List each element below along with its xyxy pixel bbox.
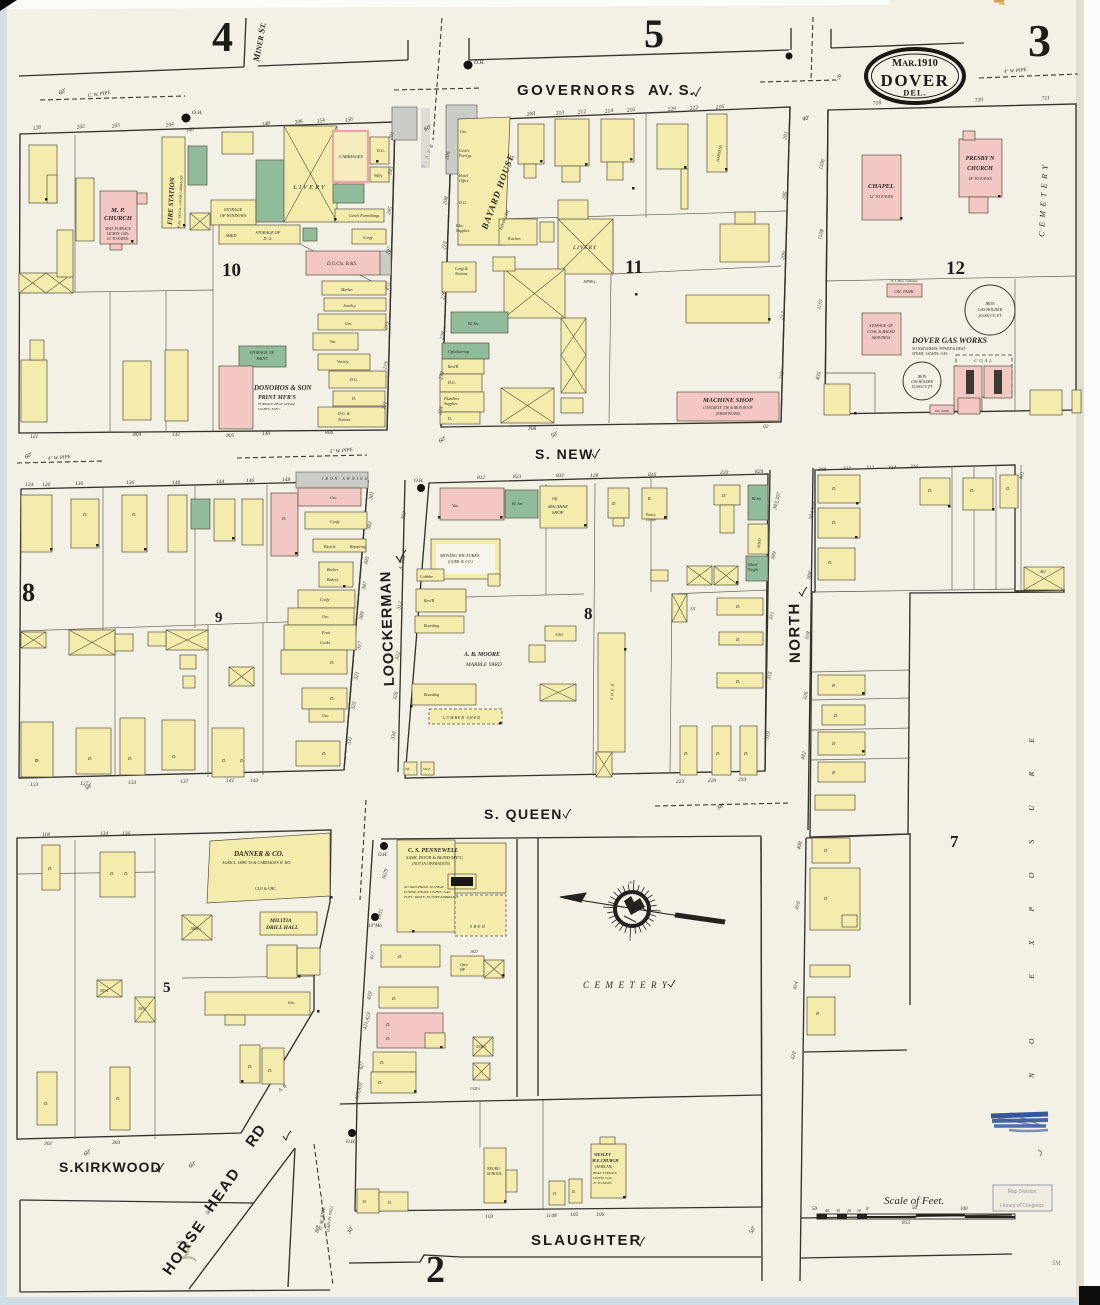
svg-text:COAL: COAL [974, 358, 994, 363]
svg-text:Notions: Notions [454, 271, 468, 276]
svg-text:5: 5 [163, 980, 171, 996]
svg-text:SHAVINGS: SHAVINGS [872, 335, 890, 340]
svg-text:D.G.: D.G. [349, 377, 358, 382]
svg-text:3032: 3032 [138, 1006, 146, 1011]
svg-text:D.: D. [115, 1096, 120, 1101]
svg-text:124: 124 [25, 481, 34, 488]
svg-text:S.KIRKWOOD: S.KIRKWOOD [59, 1159, 162, 1175]
svg-text:(FROM PLANS): (FROM PLANS) [716, 412, 741, 416]
svg-text:100: 100 [960, 1207, 968, 1212]
svg-text:DANNER & CO.: DANNER & CO. [233, 850, 284, 858]
svg-text:1806½: 1806½ [190, 926, 201, 931]
svg-text:Furn'gs: Furn'gs [458, 153, 472, 158]
svg-text:137: 137 [180, 779, 189, 785]
svg-text:Notions: Notions [337, 417, 351, 422]
svg-text:118: 118 [42, 832, 50, 838]
svg-text:Corner: Corner [646, 518, 657, 522]
svg-text:1899¼: 1899¼ [583, 279, 596, 284]
svg-text:Upholstering: Upholstering [448, 349, 469, 354]
svg-text:B.: B. [648, 496, 651, 501]
svg-text:D.: D. [221, 758, 226, 763]
svg-text:Confy: Confy [363, 235, 373, 240]
svg-text:C. S. PENNEWELL: C. S. PENNEWELL [408, 848, 459, 854]
svg-text:140: 140 [172, 479, 181, 486]
svg-text:50: 50 [812, 1207, 818, 1212]
svg-text:216: 216 [626, 107, 635, 114]
svg-text:D.: D. [397, 954, 402, 959]
svg-text:Variety: Variety [337, 359, 349, 364]
svg-text:CEMETERY: CEMETERY [583, 980, 672, 990]
svg-text:Open: Open [460, 963, 468, 967]
svg-text:D.: D. [247, 1064, 252, 1069]
svg-text:IRON AWNING: IRON AWNING [321, 476, 369, 481]
svg-text:1827: 1827 [470, 949, 479, 954]
svg-text:14"Mn: 14"Mn [368, 924, 382, 929]
svg-text:130: 130 [75, 481, 84, 487]
svg-text:SCHOOL: SCHOOL [487, 1172, 502, 1176]
svg-text:823: 823 [513, 474, 522, 480]
svg-text:HEAT: FURNACE: HEAT: FURNACE [592, 1171, 617, 1175]
svg-text:Library of Congress: Library of Congress [1000, 1203, 1044, 1209]
svg-text:312: 312 [865, 465, 875, 471]
svg-text:303: 303 [111, 1140, 121, 1146]
svg-text:D.: D. [267, 1068, 272, 1073]
svg-text:204: 204 [165, 121, 175, 129]
svg-text:D.: D. [969, 488, 974, 493]
svg-text:D.: D. [362, 1199, 367, 1204]
svg-text:IRON: IRON [984, 301, 995, 306]
svg-text:Wheel: Wheel [748, 563, 758, 567]
svg-text:CLO & VHC.: CLO & VHC. [255, 886, 277, 891]
svg-text:LIGHTS: ELEC-: LIGHTS: ELEC- [257, 407, 281, 411]
svg-text:154: 154 [316, 117, 326, 125]
svg-text:SHOP: SHOP [552, 510, 564, 515]
svg-text:Vac.: Vac. [452, 503, 460, 508]
svg-text:3034: 3034 [100, 988, 108, 993]
svg-text:D.: D. [735, 637, 740, 642]
svg-text:PAINT: PAINT [255, 356, 268, 361]
svg-text:Gent's Furnishings: Gent's Furnishings [349, 213, 380, 218]
svg-text:D.: D. [831, 486, 836, 491]
svg-text:NEGRO: NEGRO [486, 1167, 500, 1171]
svg-text:D.: D. [321, 751, 326, 756]
svg-text:DEL.: DEL. [903, 88, 927, 98]
svg-text:OIL TANK: OIL TANK [935, 409, 950, 413]
svg-text:40: 40 [825, 1208, 829, 1213]
svg-text:5M: 5M [1052, 1261, 1060, 1267]
svg-text:LIGHTS: GAS:: LIGHTS: GAS: [106, 232, 129, 236]
svg-text:Market: Market [340, 287, 353, 292]
svg-text:103: 103 [485, 1214, 494, 1220]
svg-text:233: 233 [738, 777, 747, 783]
svg-text:MARBLE YARD: MARBLE YARD [465, 662, 502, 668]
svg-text:SEAT. FURNACE: SEAT. FURNACE [105, 227, 132, 231]
svg-text:D.G. &: D.G. & [337, 411, 351, 416]
svg-text:O.H.: O.H. [346, 1140, 356, 1145]
svg-text:30: 30 [836, 1208, 840, 1213]
svg-text:NO WATCHMAN- POWER & HEAT-: NO WATCHMAN- POWER & HEAT- [911, 347, 967, 351]
svg-text:148: 148 [282, 476, 291, 483]
svg-text:Office: Office [459, 178, 469, 183]
svg-text:Rest'R: Rest'R [447, 364, 459, 369]
svg-text:141: 141 [172, 431, 181, 438]
svg-text:MACHINE SHOP: MACHINE SHOP [702, 397, 754, 404]
svg-text:FURNACE HEAT- STEAM: FURNACE HEAT- STEAM [257, 402, 295, 406]
svg-text:IRON: IRON [917, 375, 927, 379]
svg-text:829: 829 [755, 469, 764, 475]
svg-text:220: 220 [720, 470, 729, 476]
svg-text:D.: D. [552, 1191, 557, 1196]
svg-text:D.: D. [447, 416, 452, 421]
svg-text:OF WINDOWS: OF WINDOWS [220, 213, 247, 218]
svg-text:11: 11 [625, 257, 643, 278]
svg-text:LIVERY: LIVERY [572, 245, 597, 251]
svg-text:Wright: Wright [748, 568, 759, 572]
svg-text:D.: D. [329, 660, 334, 665]
svg-text:D.: D. [377, 1080, 382, 1085]
svg-text:Bl.Sm.: Bl.Sm. [752, 497, 762, 501]
svg-text:NORTH: NORTH [786, 602, 804, 663]
svg-text:Shed: Shed [423, 767, 430, 771]
svg-text:D.: D. [827, 560, 832, 565]
svg-text:141: 141 [226, 777, 235, 784]
svg-text:Bakery: Bakery [327, 577, 339, 582]
svg-text:OIL TANK: OIL TANK [894, 289, 914, 294]
svg-text:SHED: SHED [609, 682, 615, 700]
svg-text:4305½: 4305½ [476, 1045, 486, 1049]
svg-text:D.: D. [87, 756, 92, 761]
svg-text:Kitchen: Kitchen [507, 236, 520, 241]
svg-text:STORAGE OF: STORAGE OF [869, 323, 893, 328]
svg-text:GOVERNORS: GOVERNORS [517, 82, 637, 99]
svg-text:D.: D. [239, 758, 244, 763]
svg-text:D.: D. [387, 1200, 392, 1205]
svg-text:D.: D. [47, 866, 52, 871]
svg-text:D.: D. [351, 396, 356, 401]
svg-text:S. QUEEN: S. QUEEN [484, 806, 563, 822]
svg-text:311: 311 [690, 606, 696, 611]
svg-text:216: 216 [715, 104, 724, 111]
svg-text:806: 806 [325, 430, 334, 436]
svg-text:CHURCH: CHURCH [104, 215, 133, 222]
svg-text:212: 212 [577, 109, 586, 116]
svg-text:Off: Off [552, 496, 558, 501]
svg-text:Bicycle: Bicycle [324, 544, 336, 549]
svg-text:STORAGE OF: STORAGE OF [250, 350, 275, 355]
svg-text:815: 815 [902, 1220, 911, 1226]
svg-text:N: N [628, 880, 632, 885]
svg-text:CHAPEL: CHAPEL [868, 183, 894, 190]
svg-text:MAR.1910: MAR.1910 [892, 58, 938, 69]
svg-text:DONOHOS & SON: DONOHOS & SON [253, 384, 313, 392]
svg-text:Gro.: Gro. [322, 614, 329, 619]
svg-text:Cooks: Cooks [320, 640, 330, 645]
svg-text:128: 128 [590, 473, 599, 479]
svg-text:805: 805 [226, 433, 235, 439]
svg-text:D.G.: D.G. [447, 380, 456, 385]
svg-text:106: 106 [596, 1212, 605, 1218]
svg-text:D.: D. [927, 488, 932, 493]
svg-text:COAL & BALED: COAL & BALED [867, 329, 895, 334]
svg-text:711: 711 [1042, 95, 1051, 102]
svg-text:GAS HOLDER: GAS HOLDER [978, 307, 1003, 312]
svg-text:D.: D. [721, 493, 726, 498]
svg-text:8: 8 [584, 604, 593, 623]
svg-text:AGRICL. IMPL'TS & CARRIAGES W.: AGRICL. IMPL'TS & CARRIAGES W. HO. [221, 860, 291, 865]
svg-text:SHED: SHED [226, 233, 237, 238]
svg-text:(CURR. B. CO.): (CURR. B. CO.) [448, 560, 474, 564]
svg-text:02: 02 [763, 424, 769, 430]
svg-text:O.H.: O.H. [414, 479, 424, 484]
svg-text:2: 2 [426, 1249, 445, 1291]
svg-text:1148: 1148 [546, 1212, 557, 1219]
svg-text:STORAGE: STORAGE [224, 207, 243, 212]
svg-text:Confy: Confy [330, 519, 340, 524]
svg-text:MACHINE: MACHINE [547, 504, 568, 509]
svg-text:10: 10 [857, 1208, 861, 1213]
svg-text:812: 812 [477, 475, 486, 481]
svg-text:220: 220 [667, 106, 676, 113]
svg-text:(AFRICAN): (AFRICAN) [595, 1165, 613, 1169]
svg-text:D.: D. [82, 512, 87, 517]
svg-text:816: 816 [648, 472, 657, 478]
svg-text:Jewelry: Jewelry [343, 303, 356, 308]
svg-text:146: 146 [246, 477, 255, 484]
svg-text:Cobbler: Cobbler [420, 574, 434, 579]
svg-text:D.: D. [385, 1022, 390, 1027]
svg-text:133: 133 [128, 780, 137, 786]
svg-text:D.: D. [611, 501, 616, 506]
svg-text:1302½: 1302½ [470, 1087, 480, 1091]
svg-text:Fruit: Fruit [321, 630, 331, 635]
svg-text:GAS HOLDER: GAS HOLDER [911, 380, 933, 384]
svg-text:D.G.: D.G. [376, 148, 385, 153]
svg-text:718: 718 [873, 100, 882, 107]
svg-text:SLAUGHTER: SLAUGHTER [531, 1232, 642, 1249]
svg-text:Boarding: Boarding [424, 623, 439, 628]
svg-text:LIGHTS: GAS-: LIGHTS: GAS- [592, 1176, 613, 1180]
svg-text:310: 310 [842, 466, 852, 472]
svg-text:LIVERY: LIVERY [292, 184, 326, 191]
svg-text:123: 123 [30, 782, 39, 788]
svg-text:25' TO EAVES: 25' TO EAVES [593, 1181, 612, 1185]
svg-text:O.H.: O.H. [474, 60, 485, 66]
svg-text:831: 831 [556, 473, 565, 479]
svg-text:301: 301 [43, 1141, 53, 1147]
svg-text:WESLEY: WESLEY [594, 1152, 611, 1157]
svg-text:Boarding: Boarding [424, 692, 439, 697]
svg-text:222: 222 [689, 105, 698, 112]
svg-text:Gro.: Gro. [322, 713, 329, 718]
svg-text:CHURCH: CHURCH [967, 166, 993, 172]
svg-text:S: S [629, 937, 631, 942]
svg-text:208: 208 [526, 111, 535, 118]
svg-text:3161: 3161 [555, 632, 563, 637]
svg-text:AV. S.: AV. S. [648, 82, 695, 99]
svg-text:D.: D. [329, 696, 334, 701]
svg-text:Gro.: Gro. [288, 1000, 295, 1005]
svg-text:D.: D. [34, 758, 39, 763]
svg-text:D.: D. [683, 751, 688, 756]
svg-text:D.: D. [281, 516, 286, 521]
svg-text:Supplies: Supplies [456, 228, 470, 233]
svg-text:M.E.CHURCH: M.E.CHURCH [591, 1158, 619, 1163]
svg-text:D.: D. [1005, 486, 1010, 491]
svg-text:105: 105 [570, 1212, 579, 1218]
svg-text:M. P.: M. P. [110, 207, 125, 214]
svg-text:D.: D. [571, 1189, 576, 1194]
svg-text:W. I. Mon. Gillespie: W. I. Mon. Gillespie [890, 279, 918, 283]
svg-text:DOVER GAS WORKS: DOVER GAS WORKS [911, 336, 988, 345]
svg-text:Repairing: Repairing [349, 544, 366, 549]
svg-text:214: 214 [604, 107, 613, 115]
svg-text:12: 12 [946, 258, 965, 279]
svg-text:D.: D. [743, 751, 748, 756]
svg-text:18' TO EAVES: 18' TO EAVES [968, 176, 991, 181]
svg-text:210: 210 [555, 110, 564, 117]
svg-text:Gro.: Gro. [345, 321, 352, 326]
svg-text:Confy: Confy [320, 597, 330, 602]
svg-text:Pastry: Pastry [645, 513, 656, 517]
svg-text:9: 9 [215, 610, 223, 626]
svg-text:D.: D. [123, 871, 128, 876]
svg-text:MILITIA: MILITIA [269, 918, 292, 924]
svg-text:O.H.: O.H. [378, 853, 388, 858]
svg-text:7: 7 [950, 832, 959, 851]
svg-text:D. G.: D. G. [262, 236, 272, 241]
svg-text:NO EXPOSURE: NO EXPOSURE [1027, 709, 1036, 1079]
svg-text:D.: D. [127, 756, 132, 761]
svg-text:D.: D. [379, 1060, 384, 1065]
svg-text:134: 134 [100, 830, 109, 837]
svg-text:20: 20 [847, 1208, 851, 1213]
svg-text:5: 5 [644, 11, 664, 56]
svg-text:50: 50 [912, 1206, 918, 1211]
svg-text:Map Division: Map Division [1008, 1189, 1037, 1195]
svg-text:Rest'R: Rest'R [423, 598, 435, 603]
svg-text:D.G.: D.G. [458, 200, 467, 205]
svg-text:D.: D. [131, 512, 136, 517]
svg-text:12' TO EAVES: 12' TO EAVES [869, 194, 892, 199]
svg-text:O.H.: O.H. [192, 110, 203, 116]
svg-text:308: 308 [817, 467, 827, 473]
svg-text:STEAM - LIGHTS: GAS-: STEAM - LIGHTS: GAS- [912, 352, 949, 356]
svg-text:DRILL HALL: DRILL HALL [265, 925, 299, 931]
svg-text:POWER- STEAM- LIGHTS: GAS-: POWER- STEAM- LIGHTS: GAS- [403, 890, 451, 894]
svg-text:140: 140 [185, 126, 195, 134]
svg-text:223: 223 [676, 779, 685, 785]
svg-text:D.: D. [171, 754, 176, 759]
svg-text:314: 314 [887, 464, 897, 471]
svg-text:Bl. Sm.: Bl. Sm. [512, 501, 523, 506]
svg-text:CARRIAGES: CARRIAGES [339, 154, 363, 159]
svg-text:(NOT IN OPERATION): (NOT IN OPERATION) [412, 861, 451, 866]
svg-text:804: 804 [133, 431, 142, 438]
svg-text:D.: D. [735, 604, 740, 609]
svg-text:136: 136 [122, 831, 131, 837]
svg-text:D.: D. [715, 751, 720, 756]
svg-text:LUMBER SHED: LUMBER SHED [442, 715, 481, 720]
svg-text:144: 144 [216, 478, 225, 485]
svg-text:D.G.Clo. B.&S.: D.G.Clo. B.&S. [326, 262, 357, 267]
svg-text:STORAGE OF: STORAGE OF [256, 230, 281, 235]
svg-text:Supplies: Supplies [444, 401, 458, 406]
svg-text:316: 316 [909, 464, 919, 470]
svg-text:HP: HP [459, 968, 466, 972]
svg-text:308: 308 [527, 426, 537, 432]
svg-text:Gro.: Gro. [460, 129, 467, 134]
svg-text:D.: D. [385, 1036, 390, 1041]
svg-text:Barber: Barber [327, 567, 339, 572]
svg-text:D.: D. [43, 1101, 48, 1106]
svg-text:PRINT MFR'S: PRINT MFR'S [258, 395, 297, 401]
svg-text:PRESBY'N: PRESBY'N [966, 156, 995, 162]
svg-text:8: 8 [22, 578, 35, 607]
svg-text:Off.: Off. [405, 767, 410, 771]
svg-text:229: 229 [708, 778, 717, 784]
svg-text:FUEL: WASTE- NO FIRE APPARATUS: FUEL: WASTE- NO FIRE APPARATUS [403, 895, 459, 899]
svg-text:D.: D. [391, 996, 396, 1001]
svg-text:16' TO EAVES:: 16' TO EAVES: [107, 237, 129, 241]
svg-text:461: 461 [1040, 569, 1046, 574]
svg-text:D.: D. [831, 520, 836, 525]
svg-text:720: 720 [975, 97, 984, 104]
svg-text:Willy: Willy [374, 173, 382, 178]
svg-text:136: 136 [126, 480, 135, 486]
svg-text:D.: D. [735, 679, 740, 684]
svg-text:NO WATCHMAN- NO HEAT-: NO WATCHMAN- NO HEAT- [403, 885, 445, 889]
svg-text:126: 126 [42, 482, 51, 488]
svg-text:S. NEW: S. NEW [535, 446, 594, 462]
svg-text:149: 149 [262, 430, 271, 437]
svg-text:Bl. Sm.: Bl. Sm. [468, 321, 479, 326]
svg-text:D.: D. [109, 871, 114, 876]
svg-text:121: 121 [30, 434, 39, 440]
svg-text:MOVING PICTURES: MOVING PICTURES [439, 553, 480, 558]
svg-text:3: 3 [1028, 15, 1051, 66]
svg-text:A. B. MOORE: A. B. MOORE [463, 652, 500, 658]
svg-text:148: 148 [261, 120, 271, 128]
svg-text:Vac: Vac [330, 339, 336, 344]
svg-text:4: 4 [212, 15, 233, 61]
svg-text:SHED: SHED [470, 924, 486, 929]
svg-text:Gro.: Gro. [330, 495, 337, 500]
svg-text:143: 143 [250, 777, 259, 784]
svg-text:10: 10 [222, 260, 241, 281]
